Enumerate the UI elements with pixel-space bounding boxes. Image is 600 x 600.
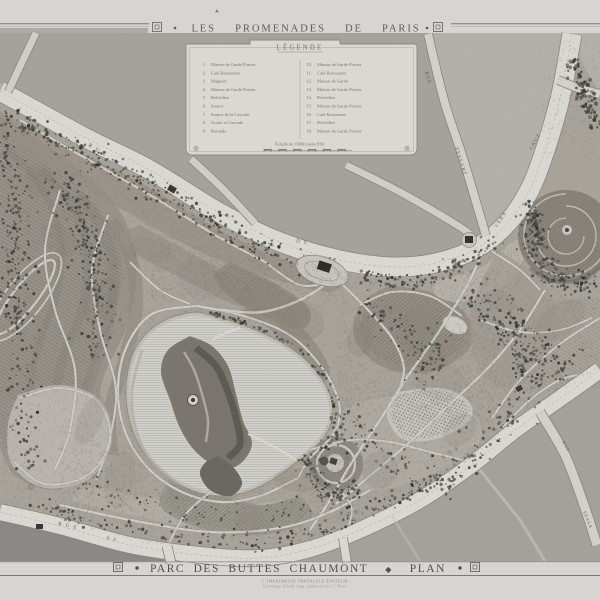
svg-text:Grotte et Cascade: Grotte et Cascade [211,120,243,125]
svg-text:5.: 5. [203,95,206,100]
svg-text:Gravé par Erhard. Imp. Lemerci: Gravé par Erhard. Imp. Lemercier et Cʹᵗ … [263,585,347,589]
svg-text:6.: 6. [203,104,206,109]
svg-text:Source de la Cascade: Source de la Cascade [211,112,249,117]
svg-text:PARC DES BUTTES CHAUMONT ◆ P: PARC DES BUTTES CHAUMONT ◆ PLAN [150,563,446,575]
svg-text:Maison de Garde Portier: Maison de Garde Portier [317,104,362,109]
svg-text:7.: 7. [203,112,206,117]
svg-text:L’IMPRIMERIE IMPÉRIALE ÉDITEUR: L’IMPRIMERIE IMPÉRIALE ÉDITEUR [262,579,347,584]
svg-text:8.: 8. [203,120,206,125]
svg-text:Maison de Garde Portier: Maison de Garde Portier [317,62,362,67]
svg-text:Échelle de 1/5000 mètre P.M.: Échelle de 1/5000 mètre P.M. [275,142,325,147]
svg-text:Belvédère: Belvédère [317,120,335,125]
svg-text:10.: 10. [306,62,312,67]
svg-text:18.: 18. [306,128,312,133]
svg-text:11.: 11. [307,70,312,75]
svg-text:2.: 2. [203,70,206,75]
svg-text:13.: 13. [306,87,312,92]
svg-text:Source: Source [211,104,224,109]
svg-text:Café Restaurant: Café Restaurant [211,70,241,75]
svg-text:Belvédère: Belvédère [317,95,335,100]
svg-text:Maison de Garde Portier.: Maison de Garde Portier. [211,62,256,67]
svg-text:Magasin: Magasin [211,79,227,84]
svg-text:Café Restaurant: Café Restaurant [317,112,347,117]
svg-text:4.: 4. [203,87,206,92]
svg-text:Maison de Garde Portier: Maison de Garde Portier [317,128,362,133]
svg-text:17.: 17. [306,120,312,125]
svg-text:LES PROMENADES DE PARIS: LES PROMENADES DE PARIS [191,24,420,35]
svg-text:3.: 3. [203,79,206,84]
svg-text:Rotonde: Rotonde [211,128,226,133]
svg-text:16.: 16. [306,112,312,117]
svg-text:Belvédère: Belvédère [211,95,229,100]
svg-text:14.: 14. [306,95,312,100]
svg-text:1.: 1. [203,62,206,67]
svg-text:15.: 15. [306,104,312,109]
svg-text:Maison de Garde: Maison de Garde [317,79,348,84]
svg-text:LÉGENDE: LÉGENDE [277,44,324,52]
svg-text:Café Restaurant: Café Restaurant [317,70,347,75]
svg-text:12.: 12. [306,79,312,84]
svg-text:9.: 9. [203,128,206,133]
svg-text:Maison de Garde Portier: Maison de Garde Portier [317,87,362,92]
svg-text:Maison de Garde Portier: Maison de Garde Portier [211,87,256,92]
